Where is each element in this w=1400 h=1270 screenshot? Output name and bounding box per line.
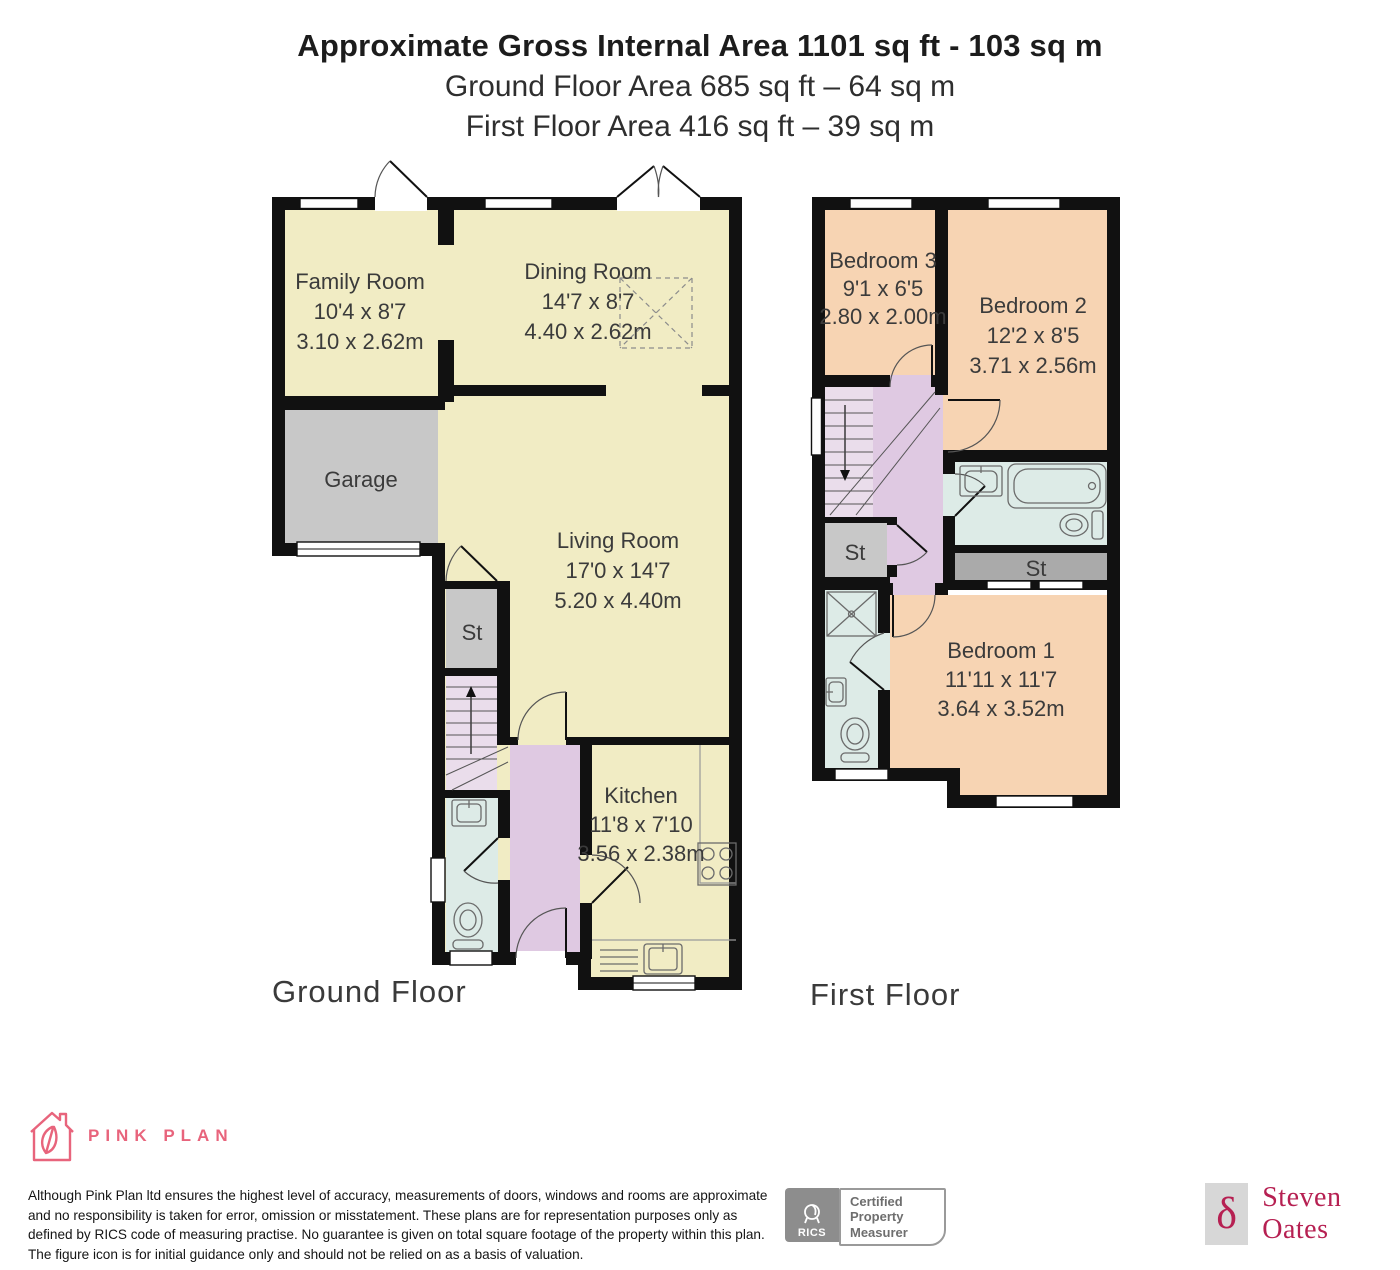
bedroom1-window xyxy=(996,796,1073,807)
bedroom1-imperial: 11'11 x 11'7 xyxy=(945,667,1057,692)
kitchen-imperial: 11'8 x 7'10 xyxy=(589,812,692,837)
dining-room-metric: 4.40 x 2.62m xyxy=(524,319,651,344)
hall-fill xyxy=(510,745,580,952)
stair-window xyxy=(812,398,822,455)
cert-line-1: Certified xyxy=(850,1194,944,1209)
ground-floor-caption: Ground Floor xyxy=(272,974,467,1010)
dining-room-imperial: 14'7 x 8'7 xyxy=(542,289,635,314)
family-room-metric: 3.10 x 2.62m xyxy=(296,329,423,354)
agent-delta-icon: δ xyxy=(1216,1192,1237,1236)
family-window xyxy=(300,199,358,209)
living-room-metric: 5.20 x 4.40m xyxy=(554,588,681,613)
store-right-name: St xyxy=(1026,556,1047,581)
disclaimer-text: Although Pink Plan ltd ensures the highe… xyxy=(28,1186,776,1265)
store-right-door-a xyxy=(987,581,1031,589)
floorplan-page: Approximate Gross Internal Area 1101 sq … xyxy=(0,0,1400,1270)
ground-store-name: St xyxy=(462,620,483,645)
certified-measurer-box: Certified Property Measurer xyxy=(839,1188,946,1246)
wc-side-window xyxy=(431,858,445,902)
bedroom2-name: Bedroom 2 xyxy=(979,293,1087,318)
bedroom3-window xyxy=(850,199,912,209)
bedroom3-imperial: 9'1 x 6'5 xyxy=(843,276,924,301)
landing-lower-fill xyxy=(887,577,940,595)
bedroom1-name: Bedroom 1 xyxy=(947,638,1055,663)
bedroom3-name: Bedroom 3 xyxy=(829,248,937,273)
kitchen-name: Kitchen xyxy=(604,783,677,808)
living-room-name: Living Room xyxy=(557,528,679,553)
agent-name: Steven Oates xyxy=(1262,1182,1400,1246)
bedroom3-door-gap xyxy=(890,375,935,390)
agent-mark-box: δ xyxy=(1205,1183,1248,1245)
first-floor-plan: Bedroom 3 9'1 x 6'5 2.80 x 2.00m Bedroom… xyxy=(795,150,1140,830)
bedroom2-imperial: 12'2 x 8'5 xyxy=(987,323,1080,348)
kitchen-metric: 3.56 x 2.38m xyxy=(577,841,704,866)
first-area-subtitle: First Floor Area 416 sq ft – 39 sq m xyxy=(0,110,1400,144)
agent-logo: δ Steven Oates xyxy=(1205,1182,1400,1246)
bedroom1-metric: 3.64 x 3.52m xyxy=(937,696,1064,721)
cert-line-3: Measurer xyxy=(850,1225,944,1240)
pink-plan-logo-icon xyxy=(26,1108,78,1164)
bedroom3-metric: 2.80 x 2.00m xyxy=(819,304,946,329)
header: Approximate Gross Internal Area 1101 sq … xyxy=(0,28,1400,144)
living-room-imperial: 17'0 x 14'7 xyxy=(565,558,670,583)
page-title: Approximate Gross Internal Area 1101 sq … xyxy=(0,28,1400,64)
rics-logo: RICS xyxy=(785,1188,839,1242)
dining-room-name: Dining Room xyxy=(524,259,651,284)
shower-window xyxy=(835,769,888,780)
store-left-name: St xyxy=(845,540,866,565)
store-right-door-b xyxy=(1039,581,1083,589)
garage-name: Garage xyxy=(324,467,397,492)
wc-bottom-window xyxy=(450,951,492,965)
dining-window xyxy=(485,199,552,209)
cert-line-2: Property xyxy=(850,1209,944,1224)
rics-label: RICS xyxy=(798,1227,826,1239)
bathroom-door-gap xyxy=(943,474,955,516)
bedroom2-metric: 3.71 x 2.56m xyxy=(969,353,1096,378)
family-room-imperial: 10'4 x 8'7 xyxy=(314,299,407,324)
family-room-name: Family Room xyxy=(295,269,425,294)
bedroom2-window xyxy=(988,199,1060,209)
shower-door-gap xyxy=(878,633,890,690)
ground-floor-plan: Family Room 10'4 x 8'7 3.10 x 2.62m Dini… xyxy=(255,150,760,1015)
rics-badge: RICS Certified Property Measurer xyxy=(785,1188,946,1246)
brand-name: PINK PLAN xyxy=(88,1126,234,1146)
rics-lion-icon xyxy=(799,1201,825,1227)
first-floor-caption: First Floor xyxy=(810,977,961,1013)
ground-area-subtitle: Ground Floor Area 685 sq ft – 64 sq m xyxy=(0,70,1400,104)
